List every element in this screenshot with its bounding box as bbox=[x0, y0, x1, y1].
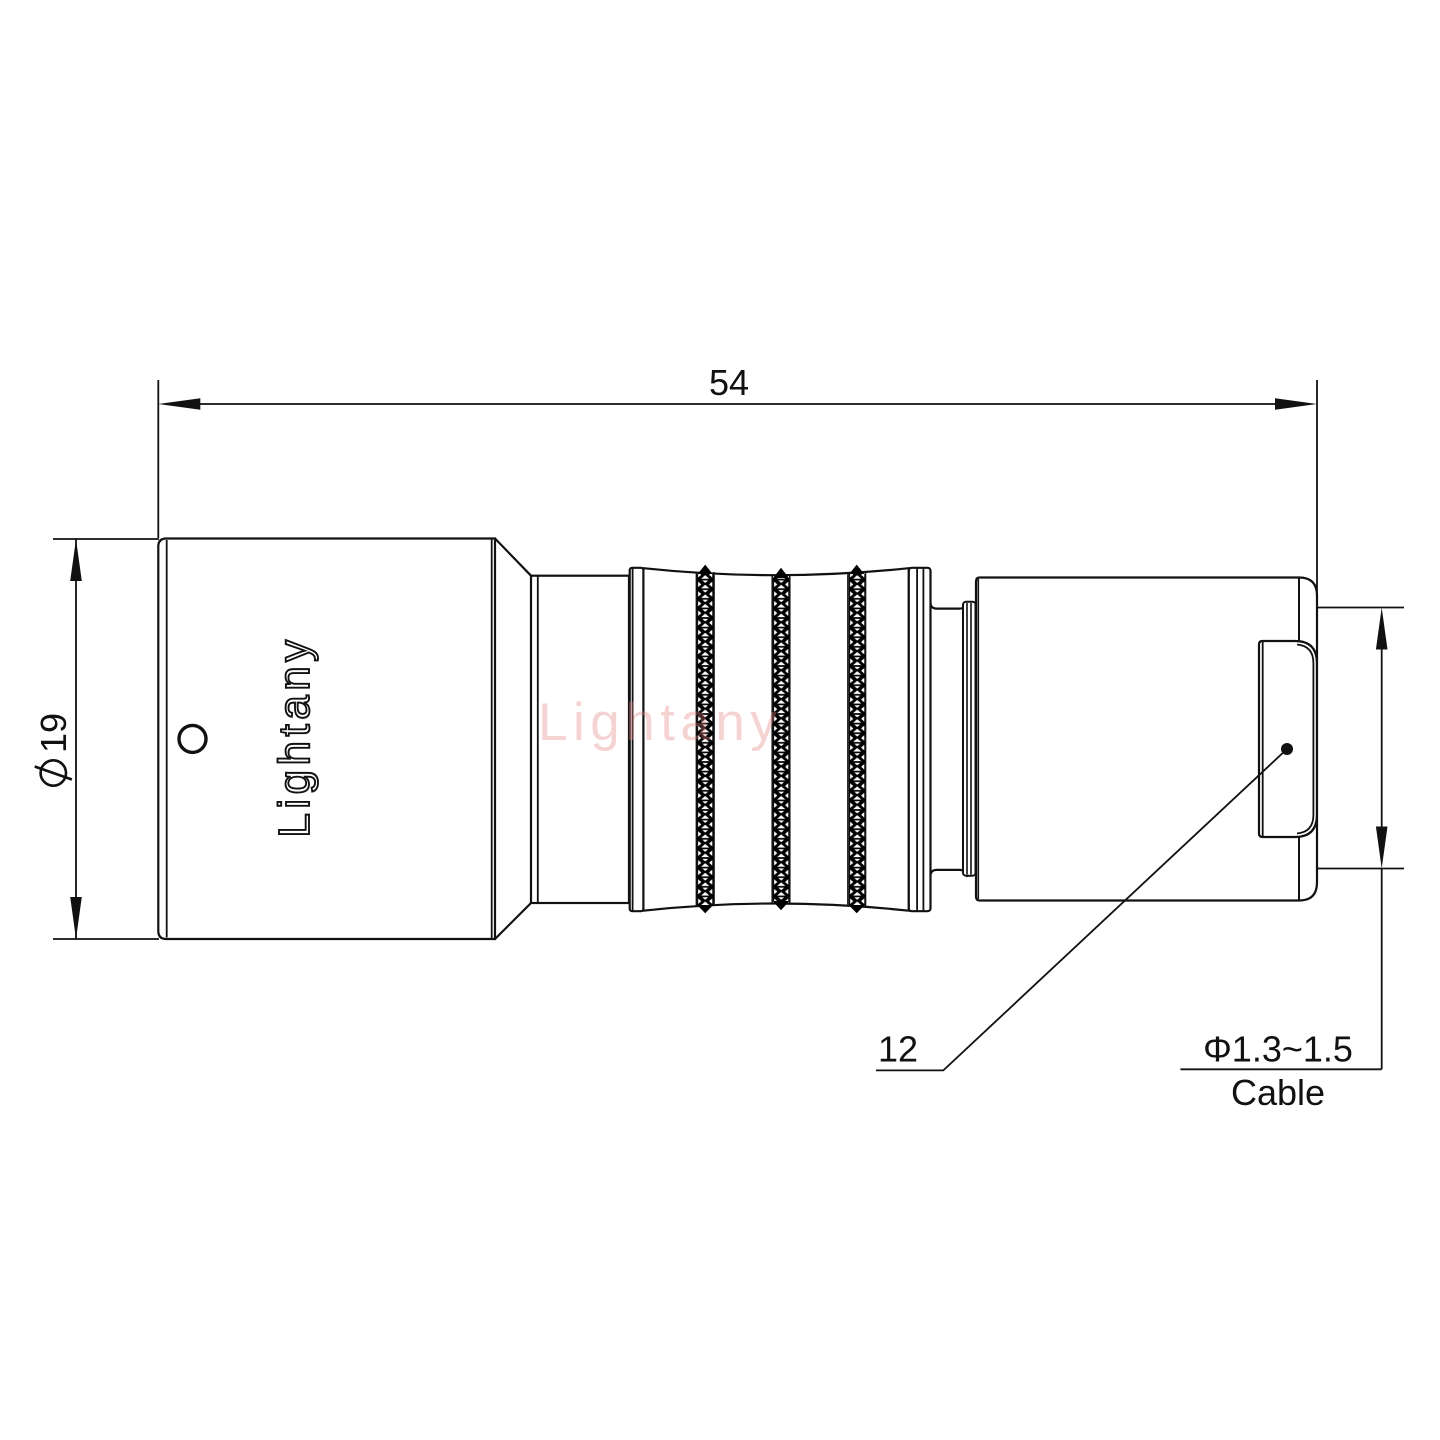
svg-text:Φ1.3~1.5: Φ1.3~1.5 bbox=[1203, 1029, 1353, 1070]
svg-text:Lightany: Lightany bbox=[270, 635, 319, 837]
svg-text:12: 12 bbox=[878, 1029, 918, 1070]
svg-text:54: 54 bbox=[709, 362, 749, 403]
svg-text:Cable: Cable bbox=[1231, 1072, 1325, 1113]
svg-text:Lightany: Lightany bbox=[538, 693, 782, 752]
svg-text:19: 19 bbox=[33, 713, 74, 753]
